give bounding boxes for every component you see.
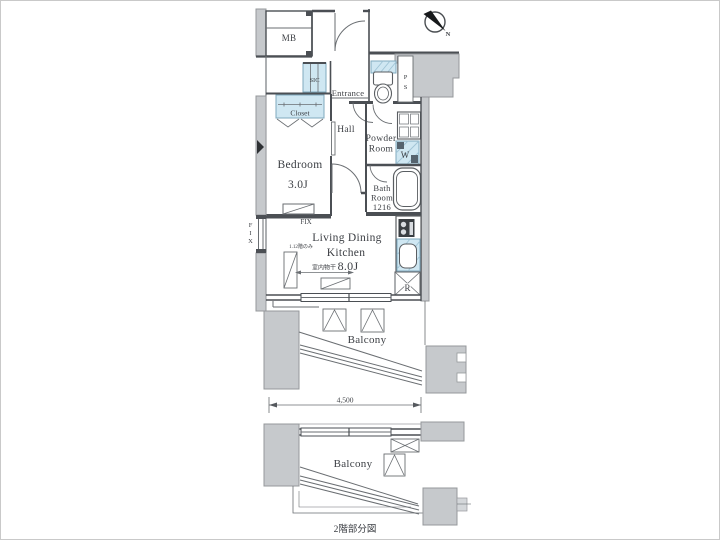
wall-right-exterior (421, 97, 429, 301)
bifold-door-left (277, 119, 299, 127)
bedroom-label: Bedroom (278, 159, 323, 171)
balcony-window-wall (266, 294, 421, 302)
svg-text:Living Dining: Living Dining (312, 232, 381, 244)
compass-icon: N (424, 11, 451, 39)
lower-mass-left (264, 424, 299, 486)
balcony-lower-label: Balcony (334, 458, 373, 470)
svg-text:Room: Room (369, 145, 394, 155)
bath-door-arc (370, 165, 387, 182)
svg-text:X: X (248, 238, 253, 245)
bifold-door-right (301, 119, 323, 127)
plan-caption: 2階部分図 (334, 523, 377, 535)
floorplan-page: MB P S S (0, 0, 720, 540)
toilet-door-arc (353, 103, 373, 123)
dimension-line: 4,500 (269, 396, 421, 414)
balcony-main-label: Balcony (348, 334, 387, 346)
entrance-label: Entrance (332, 88, 365, 98)
building-mass-bottom-right (426, 346, 466, 393)
bedroom-sliding-door (332, 122, 336, 155)
bedroom-size: 3.0J (288, 179, 308, 191)
lower-mass-right (423, 488, 471, 525)
svg-text:Powder: Powder (366, 134, 397, 144)
powder-door-arc (373, 105, 392, 124)
dimension-value: 4,500 (337, 396, 354, 405)
svg-text:1216: 1216 (373, 202, 391, 212)
svg-text:Kitchen: Kitchen (327, 247, 366, 259)
balcony-hatch-left (323, 309, 346, 331)
mb-label: MB (282, 33, 297, 43)
svg-text:F: F (249, 222, 253, 229)
ldk-counter-left: 1.12階のみ (284, 243, 313, 288)
lower-hatch-rect (391, 439, 419, 452)
sic-label: SIC (309, 77, 319, 84)
stove-icon (399, 219, 415, 237)
ps-letter-p: P (404, 74, 408, 81)
bath-room: Bath Room 1216 (366, 165, 421, 216)
kitchen-sink (397, 239, 420, 271)
closet-label: Closet (290, 109, 310, 118)
washing-machine: W (396, 141, 419, 164)
bedroom-closet: Closet (266, 94, 331, 128)
lower-partial-plan: Balcony 2階部分図 (264, 422, 471, 535)
washer-label: W (401, 150, 410, 160)
hall-room: Hall (332, 125, 367, 193)
refrigerator-space: R (395, 272, 420, 295)
meter-box: MB (256, 9, 312, 56)
refrigerator-label: R (404, 283, 410, 293)
svg-text:Bath: Bath (373, 183, 391, 193)
indoor-drying-label: 室内物干 (312, 264, 336, 272)
floor-note: 1.12階のみ (289, 243, 313, 250)
fix-window-vertical-label: F I X (248, 222, 253, 245)
ps-letter-s: S (404, 84, 408, 91)
toilet-tank (374, 72, 393, 85)
wall-left-exterior: F I X (248, 96, 266, 311)
shoe-closet: SIC (303, 63, 326, 92)
svg-text:Room: Room (371, 193, 393, 203)
ldk-counter-bottom (321, 278, 350, 289)
lower-mass-top-right (421, 422, 464, 441)
balcony-main: Balcony (264, 301, 466, 393)
fix-label-horizontal: FIX (300, 218, 311, 226)
pipe-shaft: P S (398, 56, 413, 102)
lower-hatch-square (384, 454, 405, 476)
north-label: N (446, 31, 451, 38)
ldk-door-arc (332, 164, 361, 193)
kitchen-counter (396, 216, 421, 272)
balcony-hatch-right (361, 309, 384, 332)
vanity-cabinet (398, 112, 421, 139)
svg-text:I: I (249, 230, 251, 237)
floorplan-svg: MB P S S (1, 1, 719, 539)
hall-label: Hall (337, 125, 355, 135)
